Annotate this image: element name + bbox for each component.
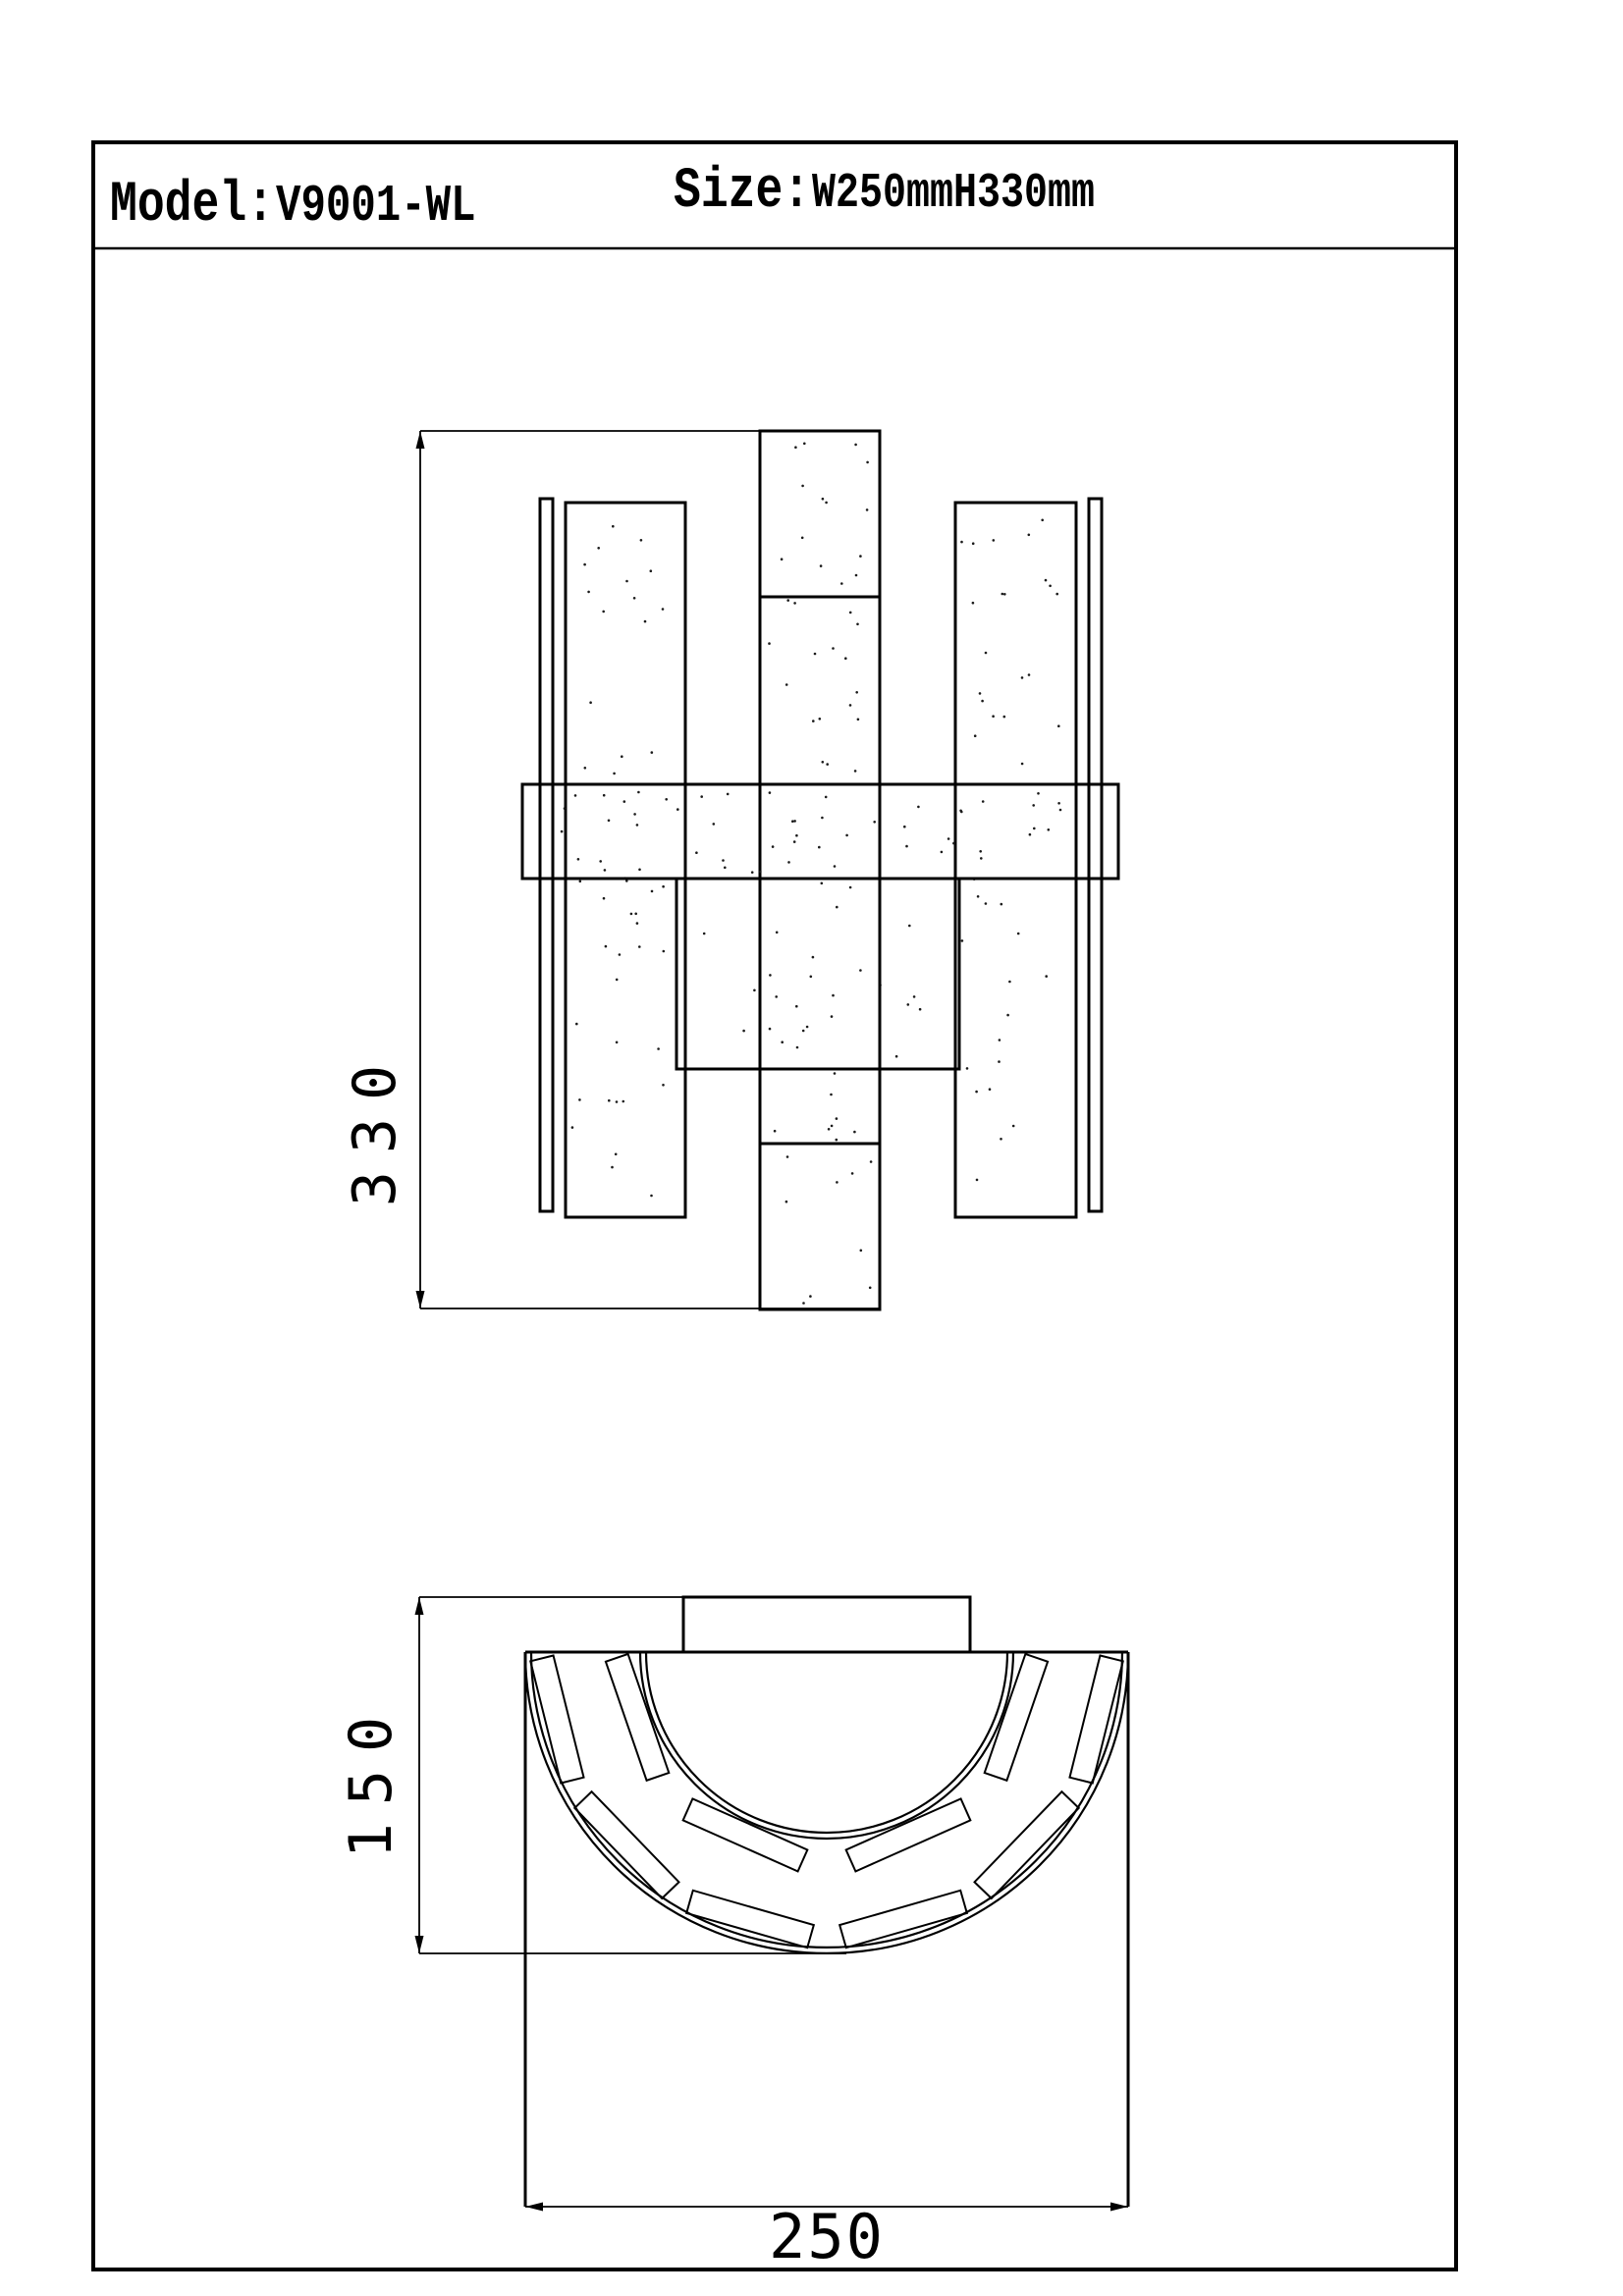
shade-arc <box>525 1652 1128 1953</box>
shade-arc <box>531 1652 1122 1948</box>
crystal-slat <box>975 1791 1079 1898</box>
crossbar <box>522 784 1118 879</box>
mounting-plate <box>683 1597 970 1652</box>
model-label: Model: <box>110 172 274 237</box>
center-column <box>760 431 880 1309</box>
crystal-slat <box>574 1791 678 1898</box>
crystal-slat <box>686 1891 814 1948</box>
depth-dimension-label: 150 <box>337 1699 406 1858</box>
shade-arc <box>640 1652 1013 1839</box>
shade-arc <box>646 1652 1007 1833</box>
crystal-slat <box>839 1891 967 1948</box>
title-block: Model: V9001-WL Size: W250mmH330mm <box>110 158 1095 237</box>
size-label: Size: <box>674 158 810 223</box>
model-value: V9001-WL <box>276 178 476 237</box>
technical-drawing-sheet: Model: V9001-WL Size: W250mmH330mm 330 1… <box>0 0 1623 2296</box>
right-panel <box>955 503 1076 1217</box>
right-strip <box>1089 499 1102 1211</box>
left-strip <box>540 499 553 1211</box>
backplate <box>676 879 959 1069</box>
crystal-slat <box>606 1654 669 1781</box>
border-rect <box>93 142 1456 2269</box>
left-panel <box>566 503 685 1217</box>
size-value: W250mmH330mm <box>812 165 1095 221</box>
width-dimension-label: 250 <box>769 2201 885 2272</box>
crystal-slat <box>985 1654 1048 1781</box>
bottom-plan-view <box>415 1597 1129 2212</box>
sheet-border <box>93 142 1456 2269</box>
front-elevation-view <box>416 431 1119 1309</box>
front-height-dimension-label: 330 <box>341 1047 409 1206</box>
